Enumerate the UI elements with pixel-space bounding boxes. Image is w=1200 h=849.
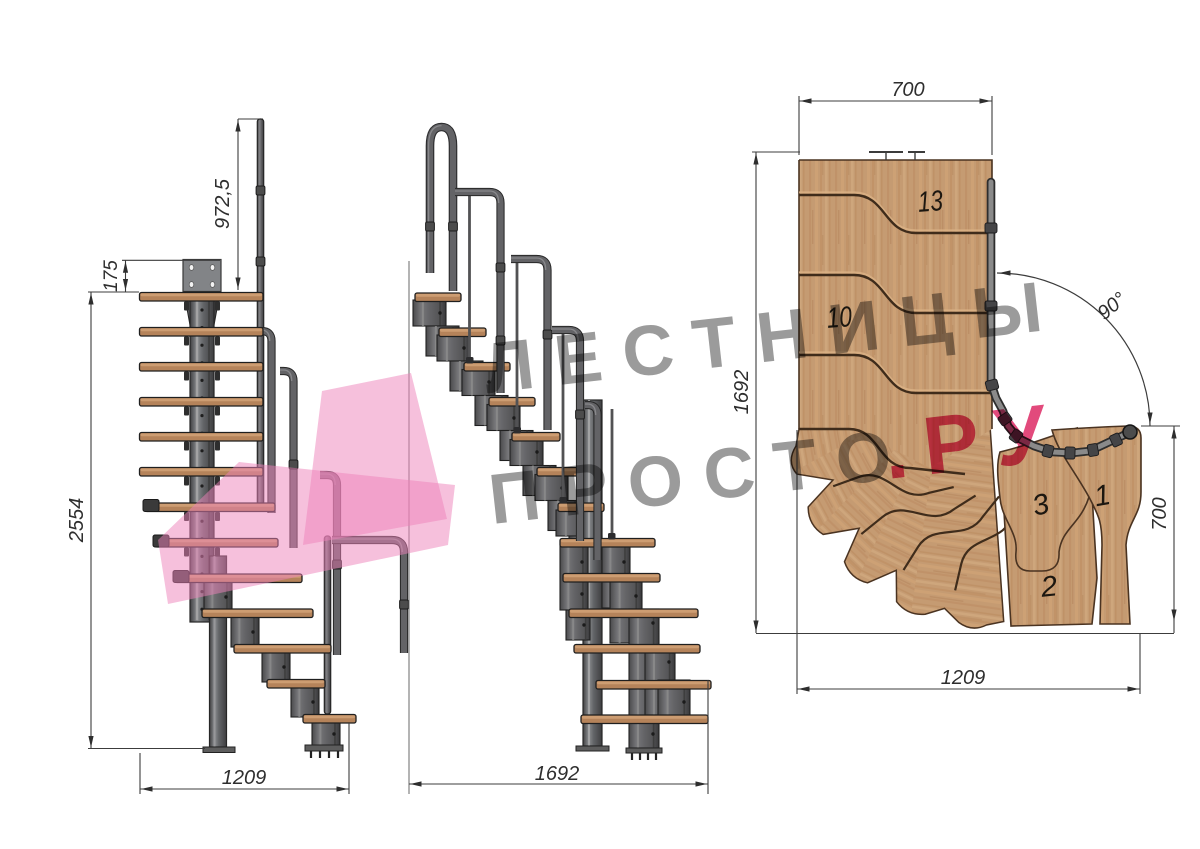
svg-text:1209: 1209 [222,767,267,789]
svg-text:1692: 1692 [535,763,580,785]
svg-text:2: 2 [1038,570,1058,604]
svg-text:2554: 2554 [66,498,88,544]
svg-text:175: 175 [101,260,122,292]
svg-text:972,5: 972,5 [212,178,234,229]
svg-text:700: 700 [1149,497,1171,530]
svg-text:700: 700 [891,79,924,101]
svg-text:1209: 1209 [941,667,986,689]
svg-text:13: 13 [917,185,944,219]
